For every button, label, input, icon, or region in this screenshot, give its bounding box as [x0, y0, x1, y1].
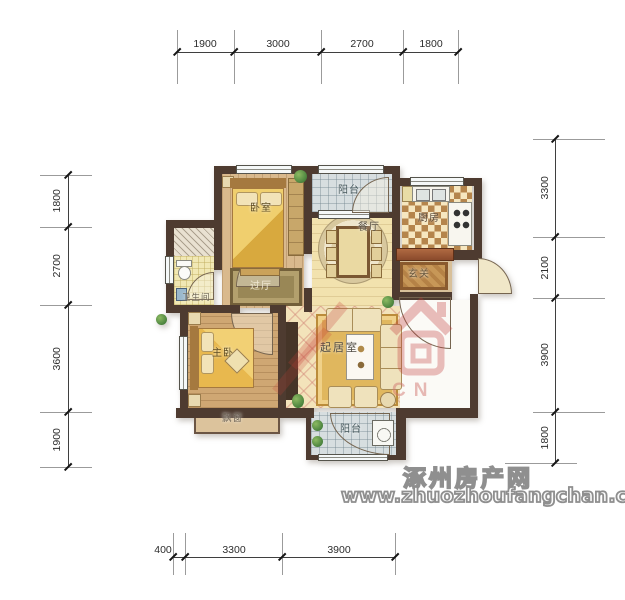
dim-line	[68, 175, 69, 467]
dim-line	[173, 557, 395, 558]
room-label-bedroom: 卧室	[250, 204, 272, 214]
dim-line	[555, 139, 556, 463]
wall	[166, 228, 174, 258]
wall	[392, 174, 400, 300]
wall	[396, 408, 478, 418]
room-label-living: 起居室	[320, 342, 359, 353]
room-label-bay-window: 飘窗	[222, 414, 243, 424]
dim-label: 3300	[209, 545, 259, 557]
wall	[166, 220, 222, 228]
ext-line	[533, 298, 605, 299]
dim-label: 3600	[52, 334, 64, 384]
room-label-dining: 餐厅	[358, 223, 380, 233]
dim-label: 1900	[52, 415, 64, 465]
dim-label: 2700	[337, 39, 387, 51]
dim-label: 2100	[540, 243, 552, 293]
window	[165, 256, 174, 284]
toilet	[178, 266, 191, 280]
stove	[448, 202, 472, 246]
dim-label: 3000	[253, 39, 303, 51]
wall	[474, 186, 482, 258]
master-nightstand	[188, 312, 201, 325]
window	[236, 165, 292, 174]
dim-label: 2700	[52, 241, 64, 291]
floorplan-canvas: 1900 3000 2700 1800 1800 2700 3600 1900	[0, 0, 625, 600]
dining-table	[336, 226, 370, 278]
wall	[304, 288, 312, 312]
plant	[292, 394, 304, 408]
room-label-bathroom: 卫生间	[182, 294, 211, 303]
bed-bench	[240, 268, 280, 276]
dim-label: 1800	[52, 176, 64, 226]
room-label-hall: 过厅	[250, 282, 272, 292]
window	[318, 165, 384, 174]
master-nightstand	[188, 394, 201, 407]
wall	[470, 294, 478, 418]
ext-line	[403, 30, 404, 84]
watermark-letters: CN	[392, 380, 435, 402]
dining-chair	[326, 230, 337, 244]
ext-line	[533, 139, 605, 140]
wall	[306, 412, 311, 460]
armchair	[328, 386, 352, 408]
dim-label: 1900	[180, 39, 230, 51]
armchair	[354, 386, 378, 408]
window	[410, 177, 464, 186]
dining-chair	[326, 264, 337, 278]
window	[318, 454, 388, 461]
ext-line	[321, 30, 322, 84]
dim-label: 1800	[540, 413, 552, 463]
shaft-hatch	[174, 228, 214, 256]
sink-basin	[432, 189, 446, 201]
ext-line	[177, 30, 178, 84]
bed-headboard	[230, 178, 286, 188]
dining-chair	[326, 247, 337, 261]
dim-label: 3900	[314, 545, 364, 557]
plant	[294, 170, 307, 183]
room-label-kitchen: 厨房	[418, 214, 440, 224]
wall	[278, 305, 286, 418]
plant	[312, 436, 323, 447]
wall	[396, 408, 406, 460]
dim-label: 3300	[540, 163, 552, 213]
ext-line	[533, 237, 605, 238]
ext-line	[458, 30, 459, 84]
room-label-balcony-top: 阳台	[338, 186, 360, 196]
room-label-balcony-bottom: 阳台	[340, 425, 362, 435]
plant	[312, 420, 323, 431]
window	[179, 336, 188, 390]
sink-basin	[416, 189, 430, 201]
ext-line	[234, 30, 235, 84]
wall	[180, 305, 188, 338]
wall	[214, 174, 222, 222]
washing-machine	[372, 420, 394, 446]
dining-chair	[371, 264, 382, 278]
dim-label: 400	[138, 545, 188, 557]
dining-chair	[371, 247, 382, 261]
room-label-entry: 玄关	[408, 270, 430, 280]
dim-label: 1800	[406, 39, 456, 51]
front-door-arc	[478, 258, 512, 294]
wall	[304, 174, 312, 254]
dim-label: 3900	[540, 330, 552, 380]
watermark-site-url: www.zhuozhoufangchan.com	[341, 484, 625, 507]
entry-shoe-cabinet	[396, 248, 454, 261]
bedroom-wardrobe	[288, 178, 304, 256]
master-headboard	[190, 326, 198, 390]
room-label-master: 主卧	[212, 349, 234, 359]
plant	[156, 314, 167, 325]
wall	[214, 228, 222, 270]
